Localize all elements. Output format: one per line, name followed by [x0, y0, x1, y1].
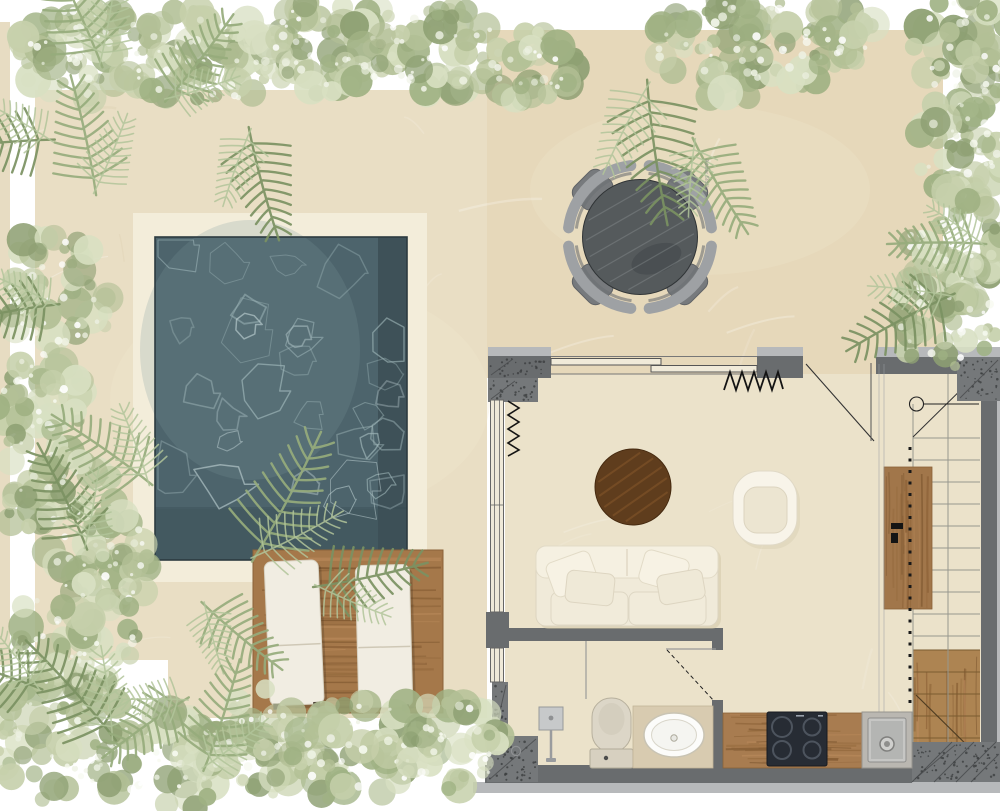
cabinet-grain-line: [893, 509, 894, 588]
concrete-dot: [540, 369, 542, 371]
sofa: [536, 546, 721, 629]
concrete-dot: [501, 763, 503, 765]
overhead-dot: [909, 528, 912, 531]
concrete-dot: [979, 381, 981, 383]
foliage-blob: [977, 341, 993, 357]
foliage-blob: [322, 793, 333, 804]
concrete-dot: [955, 776, 958, 779]
foliage-speckle: [407, 74, 413, 80]
foliage-blob: [707, 75, 743, 111]
foliage-speckle: [982, 311, 986, 315]
foliage-speckle: [957, 327, 966, 336]
foliage-speckle: [140, 541, 145, 546]
concrete-dot: [499, 373, 501, 375]
foliage-speckle: [30, 365, 34, 369]
overhead-dot: [909, 551, 912, 554]
concrete-dot: [493, 380, 494, 381]
foliage-speckle: [482, 756, 488, 762]
foliage-speckle: [537, 54, 542, 59]
pool: [133, 213, 427, 582]
foliage-speckle: [962, 18, 970, 26]
foliage-speckle: [155, 73, 160, 78]
floor-plan-svg: Top-view floor plan rendering of a studi…: [0, 0, 1000, 811]
foliage-speckle: [138, 782, 142, 786]
foliage-speckle: [153, 749, 159, 755]
foliage-speckle: [65, 764, 70, 769]
concrete-dot: [996, 378, 999, 381]
foliage-speckle: [985, 300, 994, 309]
cabinet-handle: [891, 533, 898, 543]
foliage-speckle: [130, 539, 138, 547]
foliage-speckle: [78, 773, 84, 779]
sofa-pillow: [564, 570, 615, 607]
concrete-dot: [540, 373, 541, 374]
concrete-dot: [996, 371, 998, 373]
foliage-speckle: [533, 50, 536, 53]
concrete-dot: [518, 756, 521, 759]
overhead-dot: [909, 608, 912, 611]
pool-light-patch: [140, 220, 360, 480]
foliage-speckle: [960, 103, 964, 107]
foliage-blob: [938, 350, 948, 360]
concrete-dot: [532, 761, 534, 763]
foliage-speckle: [473, 726, 482, 735]
foliage-speckle: [268, 709, 273, 714]
foliage-speckle: [108, 564, 113, 569]
foliage-blob: [441, 781, 456, 796]
concrete-dot: [495, 696, 497, 698]
foliage-blob: [121, 646, 139, 664]
concrete-dot: [926, 772, 928, 774]
foliage-blob: [21, 519, 37, 535]
foliage-speckle: [347, 767, 353, 773]
foliage-blob: [14, 746, 32, 764]
foliage-speckle: [99, 763, 103, 767]
foliage-speckle: [908, 339, 912, 343]
concrete-dot: [951, 775, 953, 777]
concrete-dot: [967, 376, 969, 378]
concrete-dot: [995, 766, 997, 768]
cabinet-grain-line: [903, 516, 904, 608]
foliage-speckle: [775, 5, 784, 14]
foliage-speckle: [279, 32, 288, 41]
foliage-blob: [12, 595, 35, 618]
concrete-dot: [991, 392, 993, 394]
foliage-speckle: [54, 558, 62, 566]
foliage-blob: [256, 679, 275, 698]
foliage-speckle: [135, 526, 142, 533]
concrete-dot: [535, 360, 537, 362]
foliage-speckle: [507, 57, 513, 63]
concrete-dot: [490, 388, 492, 390]
foliage-speckle: [44, 40, 48, 44]
foliage-speckle: [154, 775, 159, 780]
overhead-dot: [909, 470, 912, 473]
foliage-blob: [63, 398, 87, 422]
concrete-dot: [493, 384, 495, 386]
foliage-speckle: [683, 42, 688, 47]
concrete-dot: [989, 370, 992, 373]
foliage-speckle: [90, 779, 94, 783]
foliage-speckle: [722, 1, 728, 7]
wall-right: [981, 397, 997, 742]
foliage-speckle: [750, 46, 757, 53]
foliage-blob: [50, 594, 75, 619]
overhead-dot: [909, 666, 912, 669]
foliage-speckle: [400, 39, 405, 44]
cooktop-controls: [796, 715, 804, 717]
foliage-speckle: [727, 5, 735, 13]
foliage-speckle: [959, 335, 962, 338]
overhead-dot: [909, 459, 912, 462]
foliage-speckle: [751, 70, 758, 77]
concrete-dot: [534, 761, 536, 763]
cooktop: [767, 712, 827, 766]
door-pane: [651, 366, 757, 373]
concrete-dot: [947, 754, 949, 756]
foliage-blob: [330, 773, 357, 800]
foliage-speckle: [307, 52, 314, 59]
foliage-blob: [558, 73, 577, 92]
concrete-dot: [995, 368, 997, 370]
floor-plan-canvas: Top-view floor plan rendering of a studi…: [0, 0, 1000, 811]
foliage-blob: [323, 759, 336, 772]
foliage-speckle: [60, 294, 68, 302]
foliage-speckle: [664, 32, 668, 36]
foliage-speckle: [555, 84, 560, 89]
foliage-blob: [953, 301, 965, 313]
foliage-speckle: [30, 472, 38, 480]
concrete-dot: [977, 390, 979, 392]
concrete-dot: [507, 374, 509, 376]
foliage-blob: [96, 548, 110, 562]
foliage-speckle: [308, 772, 316, 780]
foliage-speckle: [285, 25, 288, 28]
foliage-speckle: [743, 68, 752, 77]
foliage-speckle: [335, 62, 338, 65]
foliage-speckle: [74, 322, 80, 328]
foliage-speckle: [487, 753, 491, 757]
concrete-dot: [978, 393, 979, 394]
foliage-speckle: [739, 57, 746, 64]
foliage-speckle: [61, 338, 69, 346]
foliage-speckle: [984, 162, 988, 166]
concrete-dot: [530, 750, 533, 753]
concrete-dot: [524, 362, 526, 364]
foliage-speckle: [305, 39, 309, 43]
armchair: [733, 471, 800, 549]
foliage-blob: [105, 499, 139, 533]
foliage-blob: [809, 53, 831, 75]
foliage-speckle: [802, 72, 809, 79]
foliage-speckle: [82, 332, 88, 338]
foliage-speckle: [421, 86, 427, 92]
overhead-dot: [909, 574, 912, 577]
foliage-speckle: [417, 768, 425, 776]
foliage-speckle: [70, 655, 74, 659]
flush-button: [604, 756, 608, 760]
concrete-dot: [995, 387, 997, 389]
concrete-dot: [500, 394, 502, 396]
overhead-dot: [909, 585, 912, 588]
vanity: [633, 706, 713, 768]
concrete-dot: [529, 777, 531, 779]
concrete-dot: [494, 685, 497, 688]
concrete-dot: [523, 394, 525, 396]
concrete-dot: [514, 394, 516, 396]
foliage-blob: [675, 11, 702, 38]
concrete-dot: [515, 382, 517, 384]
foliage-speckle: [989, 163, 995, 169]
foliage-speckle: [957, 354, 964, 361]
concrete-dot: [978, 762, 980, 764]
foliage-speckle: [95, 319, 100, 324]
foliage-speckle: [953, 133, 960, 140]
foliage-blob: [122, 552, 149, 579]
concrete-dot: [497, 758, 499, 760]
foliage-blob: [72, 572, 96, 596]
foliage-speckle: [961, 277, 964, 280]
concrete-dot: [935, 769, 937, 771]
foliage-speckle: [338, 758, 345, 765]
foliage-speckle: [469, 752, 476, 759]
foliage-speckle: [733, 46, 740, 53]
foliage-speckle: [487, 771, 490, 774]
foliage-speckle: [757, 57, 764, 64]
kitchen-sink: [862, 712, 912, 768]
foliage-speckle: [559, 77, 563, 81]
concrete-dot: [519, 741, 520, 742]
foliage-speckle: [454, 34, 458, 38]
concrete-dot: [505, 779, 507, 781]
foliage-speckle: [355, 782, 364, 791]
foliage-speckle: [44, 355, 47, 358]
concrete-dot: [518, 391, 520, 393]
foliage-speckle: [976, 148, 981, 153]
foliage-speckle: [73, 59, 81, 67]
kitchen-tall-cabinet: [884, 467, 932, 609]
concrete-dot: [960, 375, 962, 377]
foliage-speckle: [39, 264, 45, 270]
concrete-dot: [965, 747, 967, 749]
foliage-blob: [90, 739, 101, 750]
foliage-speckle: [970, 140, 978, 148]
concrete-dot: [516, 778, 518, 780]
foliage-speckle: [282, 58, 291, 67]
foliage-blob: [56, 735, 83, 762]
concrete-dot: [543, 360, 546, 363]
foliage-blob: [839, 20, 868, 49]
wall-outer-strip: [488, 347, 551, 356]
foliage-blob: [39, 772, 68, 801]
foliage-speckle: [19, 489, 22, 492]
foliage-speckle: [345, 741, 352, 748]
foliage-speckle: [65, 584, 68, 587]
foliage-speckle: [926, 15, 933, 22]
overhead-dot: [909, 677, 912, 680]
foliage-blob: [699, 41, 713, 55]
foliage-speckle: [236, 95, 241, 100]
concrete-dot: [523, 399, 525, 401]
foliage-speckle: [234, 58, 239, 63]
foliage-speckle: [953, 83, 959, 89]
foliage-speckle: [273, 44, 280, 51]
foliage-blob: [939, 22, 959, 42]
foliage-blob: [797, 60, 809, 72]
concrete-dot: [963, 364, 965, 366]
foliage-blob: [282, 66, 295, 79]
foliage-speckle: [984, 14, 990, 20]
foliage-blob: [403, 731, 419, 747]
foliage-speckle: [91, 297, 97, 303]
foliage-speckle: [803, 34, 809, 40]
shower-head-center: [549, 716, 554, 721]
concrete-dot: [946, 777, 947, 778]
foliage-blob: [98, 306, 112, 320]
foliage-speckle: [474, 32, 480, 38]
foliage-speckle: [317, 759, 325, 767]
overhead-dot: [909, 597, 912, 600]
concrete-dot: [974, 378, 975, 379]
foliage-blob: [914, 163, 927, 176]
foliage-speckle: [356, 704, 361, 709]
concrete-dot: [988, 757, 990, 759]
foliage-blob: [382, 10, 395, 23]
window: [491, 400, 504, 612]
wall-outer-strip: [473, 782, 1000, 793]
concrete-dot: [523, 769, 525, 771]
concrete-dot: [525, 396, 527, 398]
concrete-dot: [539, 361, 541, 363]
foliage-speckle: [34, 598, 39, 603]
foliage-blob: [4, 436, 15, 447]
concrete-dot: [959, 744, 961, 746]
concrete-dot: [512, 385, 514, 387]
concrete-dot: [932, 770, 934, 772]
concrete-dot: [944, 761, 946, 763]
concrete-dot: [982, 745, 984, 747]
foliage-speckle: [487, 28, 492, 33]
foliage-speckle: [967, 306, 974, 313]
foliage-speckle: [36, 418, 42, 424]
foliage-speckle: [80, 593, 85, 598]
foliage-speckle: [931, 81, 938, 88]
foliage-speckle: [33, 43, 41, 51]
concrete-dot: [523, 741, 526, 744]
foliage-blob: [756, 48, 774, 66]
concrete-dot: [914, 755, 916, 757]
foliage-blob: [647, 11, 676, 40]
foliage-speckle: [656, 45, 663, 52]
concrete-dot: [943, 762, 945, 764]
foliage-speckle: [711, 18, 720, 27]
overhead-dot: [909, 505, 912, 508]
foliage-speckle: [930, 66, 935, 71]
overhead-dot: [909, 631, 912, 634]
foliage-speckle: [388, 708, 391, 711]
concrete-dot: [975, 754, 977, 756]
foliage-speckle: [552, 56, 558, 62]
concrete-dot: [983, 762, 986, 765]
foliage-blob: [950, 361, 960, 371]
foliage-speckle: [782, 47, 787, 52]
concrete-dot: [965, 765, 967, 767]
concrete-dot: [523, 766, 525, 768]
concrete-dot: [991, 361, 993, 363]
concrete-dot: [921, 751, 923, 753]
sink-drain-center: [884, 741, 890, 747]
cabinet-grain-line: [889, 472, 890, 534]
foliage-blob: [199, 788, 217, 806]
foliage-speckle: [361, 62, 369, 70]
foliage-speckle: [244, 762, 253, 771]
foliage-speckle: [427, 55, 433, 61]
concrete-dot: [973, 369, 975, 371]
wall-door-jamb: [712, 628, 723, 650]
foliage-blob: [432, 9, 444, 21]
concrete-dot: [965, 361, 967, 363]
overhead-dot: [909, 562, 912, 565]
foliage-speckle: [131, 590, 135, 594]
foliage-speckle: [540, 75, 549, 84]
concrete-dot: [934, 765, 936, 767]
concrete-dot: [521, 774, 524, 777]
foliage-blob: [371, 55, 389, 73]
foliage-blob: [930, 0, 949, 13]
foliage-speckle: [1, 388, 8, 395]
concrete-dot: [501, 370, 503, 372]
concrete-dot: [531, 391, 533, 393]
foliage-speckle: [927, 165, 931, 169]
overhead-dot: [909, 482, 912, 485]
concrete-dot: [920, 756, 922, 758]
foliage-speckle: [29, 373, 33, 377]
concrete-dot: [996, 762, 998, 764]
concrete-dot: [529, 362, 531, 364]
foliage-speckle: [525, 46, 533, 54]
foliage-speckle: [75, 332, 81, 338]
basin-drain: [671, 735, 677, 741]
foliage-speckle: [466, 705, 474, 713]
foliage-speckle: [55, 337, 63, 345]
foliage-speckle: [20, 321, 24, 325]
foliage-speckle: [297, 66, 305, 74]
foliage-speckle: [799, 51, 807, 59]
foliage-speckle: [733, 34, 740, 41]
foliage-speckle: [984, 130, 991, 137]
concrete-dot: [505, 773, 507, 775]
shower-base: [546, 758, 556, 762]
foliage-speckle: [50, 754, 54, 758]
concrete-dot: [995, 398, 997, 400]
concrete-dot: [981, 373, 983, 375]
foliage-speckle: [430, 748, 437, 755]
foliage-speckle: [53, 399, 57, 403]
concrete-dot: [533, 385, 535, 387]
toilet-tank: [590, 749, 633, 768]
overhead-dot: [909, 689, 912, 692]
foliage-speckle: [320, 17, 326, 23]
foliage-speckle: [390, 24, 396, 30]
foliage-speckle: [157, 50, 160, 53]
foliage-speckle: [42, 62, 45, 65]
concrete-dot: [946, 755, 948, 757]
foliage-speckle: [769, 6, 774, 11]
foliage-speckle: [291, 10, 294, 13]
foliage-speckle: [130, 573, 133, 576]
toilet: [590, 698, 633, 768]
foliage-speckle: [421, 58, 424, 61]
